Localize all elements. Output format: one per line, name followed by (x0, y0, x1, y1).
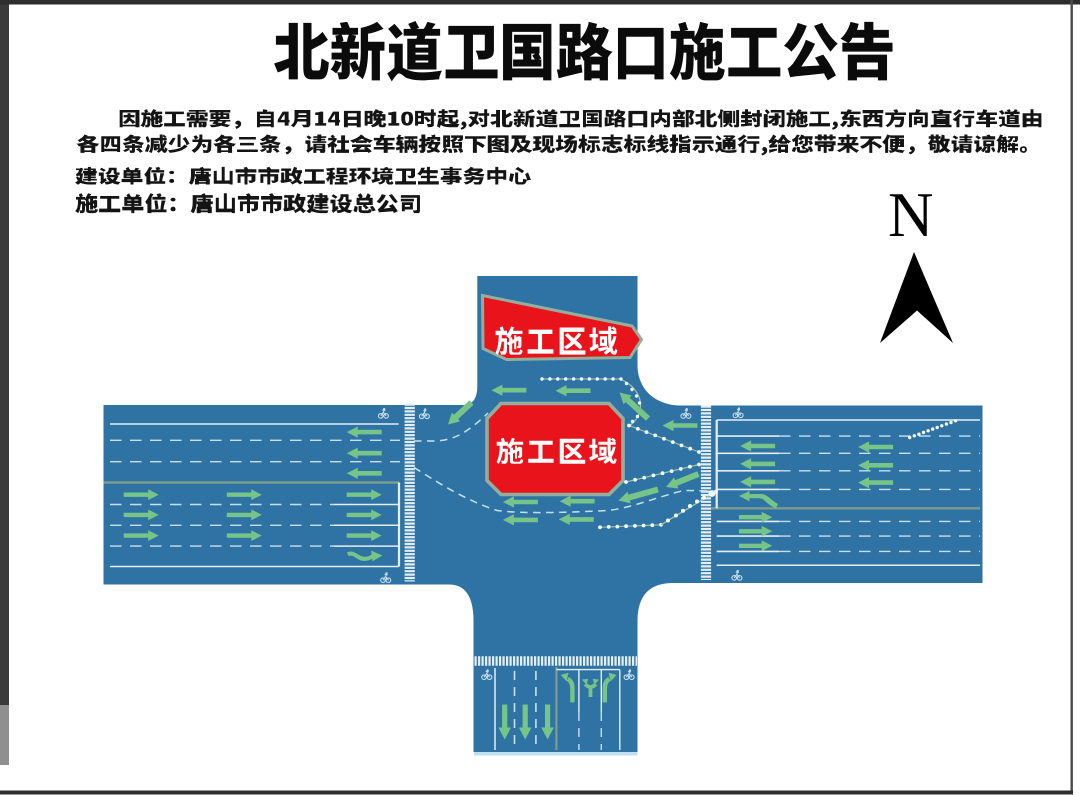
svg-text:N: N (888, 180, 934, 250)
